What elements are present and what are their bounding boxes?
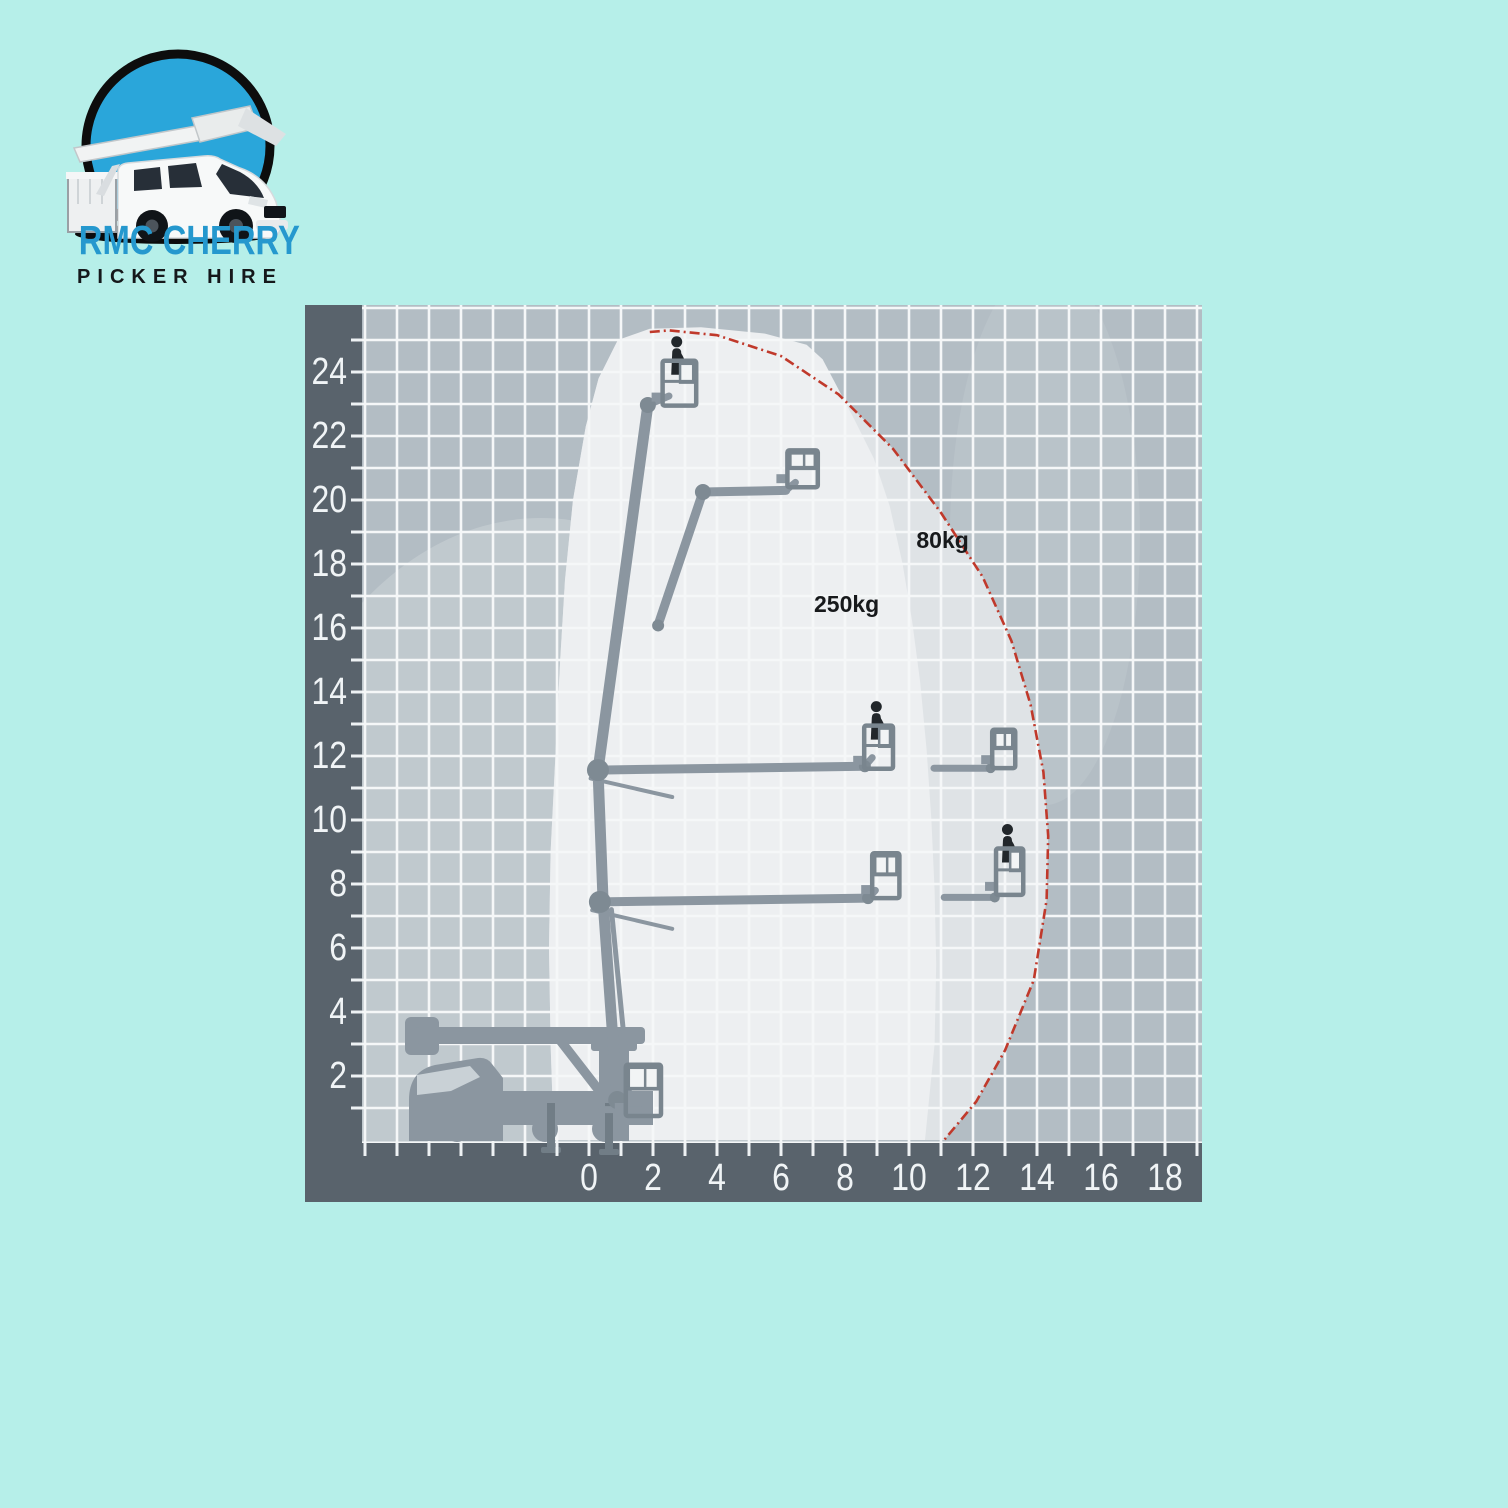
svg-text:20: 20 (311, 478, 347, 520)
svg-text:4: 4 (329, 990, 347, 1032)
logo-illustration (54, 46, 302, 246)
svg-text:22: 22 (311, 414, 347, 456)
svg-text:12: 12 (311, 734, 347, 776)
svg-text:250kg: 250kg (814, 591, 879, 617)
svg-text:2: 2 (644, 1156, 662, 1198)
svg-text:6: 6 (329, 926, 347, 968)
svg-text:0: 0 (580, 1156, 598, 1198)
svg-text:18: 18 (311, 542, 347, 584)
logo: RMC CHERRY PICKER HIRE (54, 46, 302, 296)
svg-text:8: 8 (329, 862, 347, 904)
svg-text:2: 2 (329, 1054, 347, 1096)
reach-diagram: 80kg250kg 246810121416182022240246810121… (305, 305, 1202, 1202)
svg-text:16: 16 (1083, 1156, 1119, 1198)
svg-text:12: 12 (955, 1156, 991, 1198)
page: RMC CHERRY PICKER HIRE (0, 0, 1508, 1508)
svg-text:14: 14 (311, 670, 347, 712)
svg-text:4: 4 (708, 1156, 726, 1198)
logo-subtitle: PICKER HIRE (54, 267, 302, 287)
svg-text:16: 16 (311, 606, 347, 648)
svg-text:10: 10 (311, 798, 347, 840)
svg-text:80kg: 80kg (916, 527, 968, 553)
svg-text:8: 8 (836, 1156, 854, 1198)
svg-text:18: 18 (1147, 1156, 1183, 1198)
svg-text:10: 10 (891, 1156, 927, 1198)
svg-text:14: 14 (1019, 1156, 1055, 1198)
svg-text:24: 24 (311, 350, 347, 392)
logo-title: RMC CHERRY (79, 220, 277, 261)
svg-text:6: 6 (772, 1156, 790, 1198)
